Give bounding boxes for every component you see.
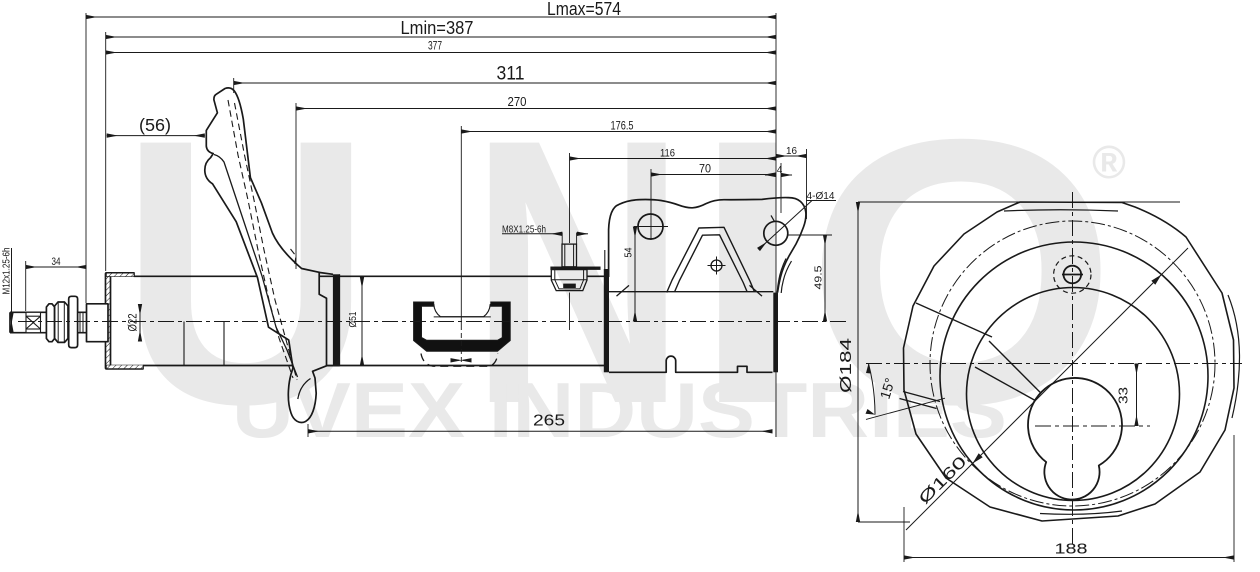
- svg-text:Lmax=574: Lmax=574: [547, 0, 621, 19]
- svg-text:377: 377: [428, 41, 442, 53]
- svg-text:188: 188: [1055, 541, 1088, 558]
- svg-text:34: 34: [52, 256, 61, 268]
- svg-text:33: 33: [1116, 387, 1131, 404]
- svg-text:M12x1.25-6h: M12x1.25-6h: [1, 247, 13, 294]
- svg-text:UVEX INDUSTRIES: UVEX INDUSTRIES: [232, 366, 1007, 454]
- svg-text:®: ®: [1092, 136, 1126, 188]
- svg-text:Lmin=387: Lmin=387: [401, 18, 474, 38]
